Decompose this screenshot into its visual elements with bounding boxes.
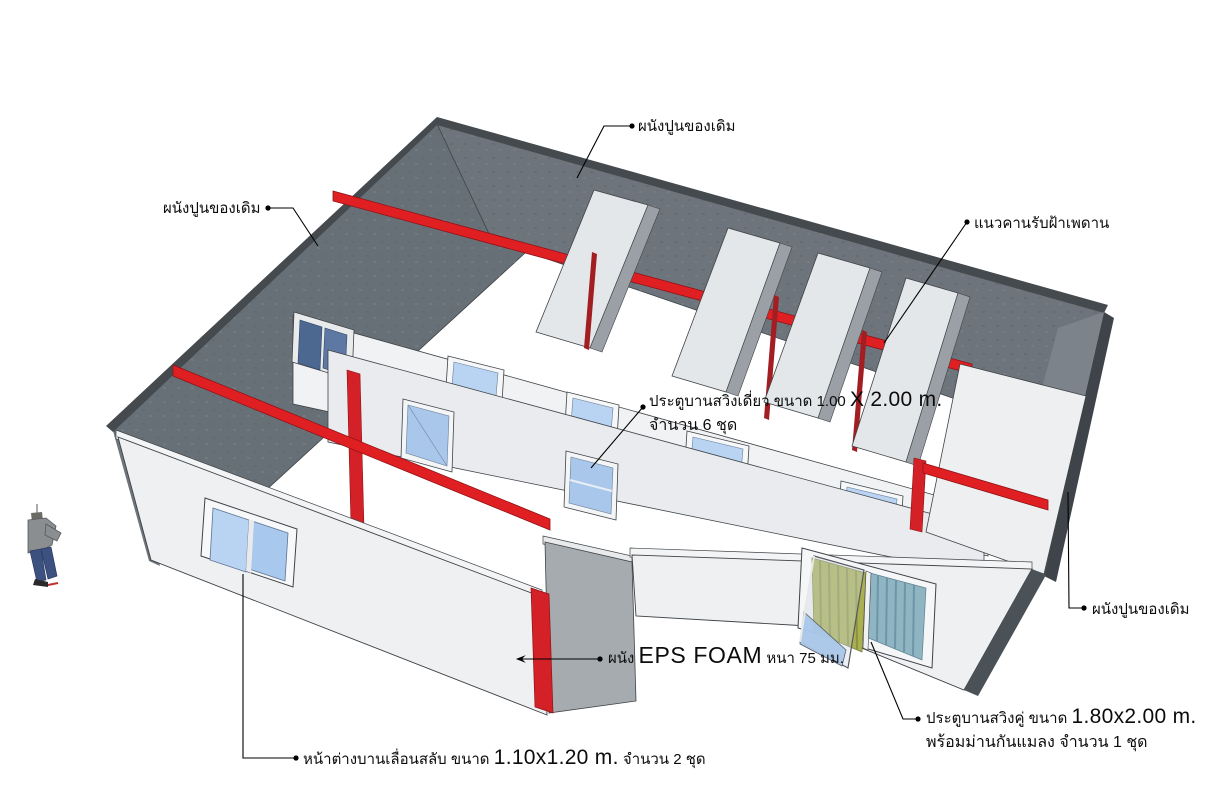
label-existing-wall-left: ผนังปูนของเดิม: [163, 199, 261, 219]
label-text: ผนังปูนของเดิม: [638, 118, 736, 135]
label-text: ผนังปูนของเดิม: [163, 200, 261, 217]
label-size: 1.80x2.00 m.: [1072, 705, 1197, 728]
label-qty: จำนวน 2 ชุด: [623, 751, 706, 768]
label-text: ประตูบานสวิงเดี่ยว ขนาด 1.00: [649, 393, 846, 410]
label-existing-wall-top: ผนังปูนของเดิม: [638, 117, 736, 137]
label-text: ประตูบานสวิงคู่ ขนาด: [926, 710, 1067, 727]
label-size: X 2.00 m.: [850, 388, 943, 411]
label-text: ผนังปูนของเดิม: [1092, 601, 1190, 618]
label-text: ผนัง: [608, 650, 634, 667]
label-size: 1.10x1.20 m.: [494, 746, 619, 769]
label-qty: พร้อมม่านกันแมลง จำนวน 1 ชุด: [926, 734, 1148, 751]
person-figure: [28, 504, 61, 587]
label-single-swing-door: ประตูบานสวิงเดี่ยว ขนาด 1.00 X 2.00 m. จ…: [649, 386, 943, 437]
label-eps-foam-wall: ผนัง EPS FOAM หนา 75 มม.: [608, 641, 844, 671]
label-existing-wall-right: ผนังปูนของเดิม: [1092, 600, 1190, 620]
model-viewport[interactable]: ผนังปูนของเดิม ผนังปูนของเดิม แนวคานรับฝ…: [0, 0, 1209, 804]
label-sliding-window: หน้าต่างบานเลื่อนสลับ ขนาด 1.10x1.20 m. …: [303, 744, 706, 771]
label-double-swing-door: ประตูบานสวิงคู่ ขนาด 1.80x2.00 m. พร้อมม…: [926, 703, 1197, 754]
label-text: แนวคานรับฝ้าเพดาน: [974, 215, 1109, 232]
3d-model-canvas[interactable]: [0, 0, 1209, 804]
label-ceiling-beam: แนวคานรับฝ้าเพดาน: [974, 214, 1109, 234]
label-qty: จำนวน 6 ชุด: [649, 417, 737, 434]
label-thickness: หนา 75 มม.: [766, 650, 844, 667]
partition-foreground: [543, 536, 636, 713]
label-text: หน้าต่างบานเลื่อนสลับ ขนาด: [303, 751, 490, 768]
red-corner-strip-front: [531, 588, 553, 713]
label-material: EPS FOAM: [639, 642, 763, 668]
